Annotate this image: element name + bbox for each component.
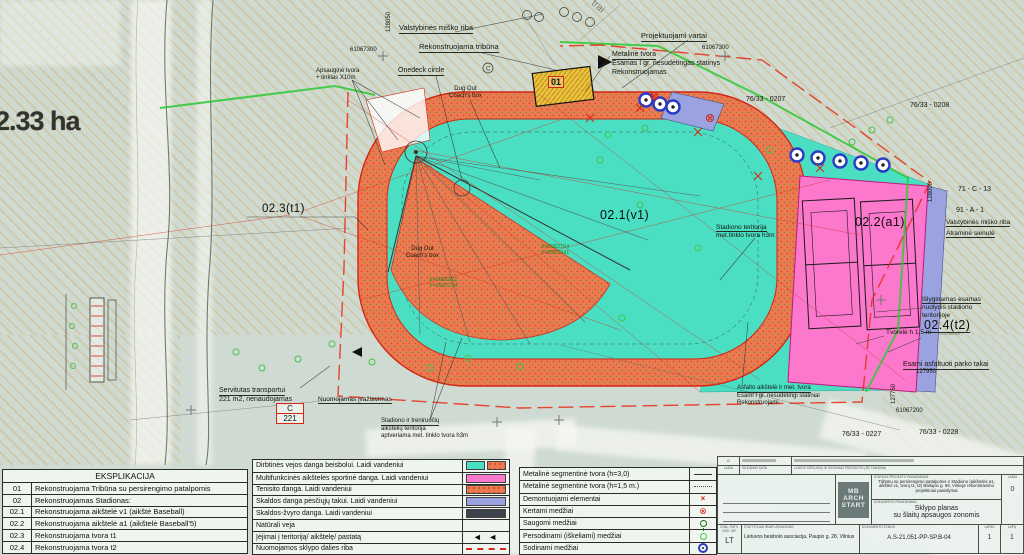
geo-point: X=6081921 Y=2587724 (429, 277, 457, 290)
violet-swatch-icon (466, 497, 506, 506)
signature-line (723, 495, 830, 504)
swatch-red-dash (462, 544, 509, 555)
leveling-label: Išlyginamas esamas nuolydis stadiono ter… (922, 296, 981, 319)
parcel-code: 76/33 - 0208 (910, 102, 949, 110)
explication-row: 02.2 Rekonstruojama aikštelė a1 (aikštel… (3, 517, 247, 529)
zone-label-field: 02.1(v1) (600, 208, 649, 222)
document-number: A.S-21.051-PP-SP.B-04 (862, 535, 976, 541)
swatch-orange (462, 485, 509, 496)
forest-boundary-label: Valstybinės miško riba (399, 24, 473, 34)
explication-text: Rekonstruojama tvora t2 (32, 542, 247, 553)
orange-swatch-icon (487, 461, 506, 470)
title-block: 0 LAIDA IŠLEIDIMO DATA LAIDOS STATUSAS I… (717, 456, 1024, 554)
legend-row: Skaldos danga pėsčiųjų takui. Laidi vand… (253, 495, 509, 507)
legend-label: Kertami medžiai (520, 506, 689, 517)
explication-table: EKSPLIKACIJA 01 Rekonstruojama Tribūna s… (2, 469, 248, 554)
swatch-dark-gray (462, 508, 509, 519)
legend-row: Įėjimai į teritoriją/ aikštelę/ pastatą … (253, 531, 509, 543)
legend-label: Demontuojami elementai (520, 494, 689, 505)
logo-cell: MB ARCH START (836, 475, 872, 524)
rented-driveway-label: Nuomojamas įvažiavimas (318, 396, 392, 404)
dugout-label-top: Dug Out Coach's box (449, 86, 482, 100)
swatch-pink (462, 473, 509, 484)
red-circle-x-icon: ⊗ (689, 506, 716, 517)
dugout-line2: Coach's box (449, 93, 482, 100)
geo-y: Y=2587241 (541, 250, 569, 256)
signature-column (718, 475, 836, 524)
explication-code: 02 (3, 495, 32, 506)
client-cell: STATYTOJAS IR/AR UŽSAKOVAS Lietuvos beis… (742, 525, 860, 553)
legend-row: Nuomojamos sklypo dalies riba (253, 543, 509, 555)
legend-label: Metalinė segmentinė tvora (h=3,0) (520, 468, 689, 480)
docnum-label: DOKUMENTO ŽYMUO (862, 526, 976, 530)
legend-row: Persodinami (iškeliami) medžiai (520, 529, 716, 541)
explication-text: Rekonstruojama aikštelė a1 (aikštelė Bas… (32, 518, 247, 529)
project-title: Tribūnų su persirengimo patalpomis ir St… (874, 480, 999, 495)
zone-label-fence-t1: 02.3(t1) (262, 203, 305, 216)
low-fence-label: Tvorelė h 1,5 m (886, 329, 931, 336)
explication-code: 01 (3, 483, 32, 494)
explication-text: Rekonstruojama Tribūna su persirengimo p… (32, 483, 247, 494)
geo-point: X=6082154 Y=2587241 (541, 244, 569, 257)
explication-row: 02.1 Rekonstruojama aikštelė v1 (aikštė … (3, 506, 247, 518)
kval-label: KVAL. PATV. DOK. NR. (720, 526, 739, 533)
legend-label: Natūrali veja (253, 520, 462, 531)
legend-label: Įėjimai į teritoriją/ aikštelę/ pastatą (253, 532, 462, 543)
legend-label: Nuomojamos sklypo dalies riba (253, 544, 462, 555)
stadium-fence-line2: met.tinklo tvora h3m (716, 232, 775, 239)
servitude-label: Servitutas transportui 221 m2, nenaudoja… (219, 387, 292, 404)
legend-row: Skaldos-žvyro danga. Laidi vandeniui (253, 507, 509, 519)
stadium-fence-line1: Stadiono teritorija (716, 224, 767, 232)
teal-swatch-icon (466, 461, 485, 470)
document-title-line1: Sklypo planas (874, 505, 999, 512)
retaining-wall-label: Atraminė sienutė (946, 230, 995, 238)
legend-row: Metalinė segmentinė tvora (h=3,0) (520, 468, 716, 480)
asphalt-line3: Rekonstruojami (737, 400, 820, 407)
legend-row: Metalinė segmentinė tvora (h=1,5 m.) (520, 480, 716, 492)
parcel-code: 76/33 - 0207 (746, 96, 785, 104)
laida-cell: LAIDA 0 (1001, 475, 1023, 524)
grid-coordinate: 128000 (928, 182, 935, 202)
asphalt-line2: Esami I gr. nesudėtingi statiniai (737, 393, 820, 400)
explication-code: 02.1 (3, 507, 32, 518)
sheet-value: 1 (981, 534, 998, 541)
date-label: IŠLEIDIMO DATA (740, 466, 792, 474)
survey-tags (483, 8, 595, 74)
metal-fence-label: Metalinė tvora (612, 51, 656, 60)
parcel-code: 76/33 - 0227 (842, 431, 881, 439)
zone-label-tribune: 01 (548, 76, 564, 88)
sheets-cell: LAPŲ 1 (1001, 525, 1023, 553)
training-fence-label: Stadiono ir treniruočių aikštelių terito… (381, 418, 468, 440)
tribune-label: Rekonstruojama tribūna (419, 43, 499, 53)
sheets-value: 1 (1003, 534, 1021, 541)
legend-row: Saugomi medžiai (520, 517, 716, 529)
grid-coordinate: 127950 (916, 369, 936, 376)
dugout-label-mid: Dug Out Coach's box (406, 246, 439, 260)
solid-line-icon (689, 468, 716, 480)
illegible-text (742, 459, 776, 462)
laida-value: 0 (1004, 486, 1021, 493)
protective-fence-line2: + tinklas X10m (316, 75, 359, 82)
explication-code: 02.3 (3, 530, 32, 541)
legend-label: Sodinami medžiai (520, 543, 689, 554)
document-title-line2: su šlaitų apsaugos zonomis (874, 512, 999, 519)
symbols-legend: Metalinė segmentinė tvora (h=3,0) Metali… (519, 467, 717, 555)
legend-row: Demontuojami elementai × (520, 493, 716, 505)
parcel-code: 71 - C - 13 (958, 186, 991, 194)
sheets-label: LAPŲ (1003, 526, 1021, 530)
training-fence-line3: aptveriama met. tinklo tvora h3m (381, 433, 468, 440)
legend-label: Saugomi medžiai (520, 518, 689, 529)
revision-value: 0 (718, 457, 740, 465)
signature-line (723, 513, 830, 522)
swatch-none (462, 520, 509, 531)
red-dash-icon (466, 548, 506, 550)
leveling-line3: teritorijoje (922, 312, 981, 319)
explication-row: 02 Rekonstruojamas Stadionas: (3, 494, 247, 506)
logo-line3: START (842, 503, 866, 510)
revision-label: LAIDA (718, 466, 740, 474)
language-code: LT (720, 536, 739, 545)
geo-y: Y=2587724 (429, 283, 457, 289)
explication-row: 02.4 Rekonstruojama tvora t2 (3, 541, 247, 553)
entrance-arrow-icon (598, 55, 612, 69)
empty-swatch (466, 521, 506, 530)
gates-label: Projektuojami vartai (641, 32, 707, 42)
revision-date-cell (740, 457, 792, 465)
ondeck-label: Onedeck circle (398, 67, 444, 76)
parcel-code: 91 - A - 1 (956, 207, 984, 215)
legend-row: Tenisito danga. Laidi vandeniui (253, 484, 509, 496)
site-plan-screenshot: C 2.33 ha Valstybinės miško riba (0, 0, 1024, 555)
swatch-violet (462, 496, 509, 507)
explication-code: 02.2 (3, 518, 32, 529)
signature-line (723, 504, 830, 513)
planted-tree-icon (689, 543, 716, 554)
training-fence-line2: aikštelių teritorija (381, 426, 468, 433)
explication-text: Rekonstruojamas Stadionas: (32, 495, 247, 506)
kval-cell: KVAL. PATV. DOK. NR. LT (718, 525, 742, 553)
legend-row: Multifunkcinės aikštelės sportinė danga.… (253, 472, 509, 484)
legend-label: Skaldos danga pėsčiųjų takui. Laidi vand… (253, 496, 462, 507)
docnum-cell: DOKUMENTO ŽYMUO A.S-21.051-PP-SP.B-04 (860, 525, 979, 553)
explication-row: 02.3 Rekonstruojama tvora t1 (3, 529, 247, 541)
swatch-entrance-arrows: ◄ ◄ (462, 532, 509, 543)
area-size-label: 2.33 ha (0, 106, 80, 137)
fence-elevation-detail (66, 294, 116, 390)
client-name: Lietuvos beisbolo asociacija, Paupio g. … (744, 534, 857, 540)
leveling-line2: nuolydis stadiono (922, 304, 981, 311)
dugout-line1: Dug Out (449, 86, 482, 93)
grid-coordinate: 61067300 (350, 47, 377, 54)
stadium-fence-label: Stadiono teritorija met.tinklo tvora h3m (716, 224, 775, 240)
pink-swatch-icon (466, 474, 506, 483)
arch-start-logo: MB ARCH START (838, 482, 869, 518)
illegible-text (794, 459, 914, 462)
sheet-label: LAPAS (981, 526, 998, 530)
grid-coordinate: 128050 (386, 12, 393, 32)
red-x-icon: × (689, 494, 716, 505)
explication-code: 02.4 (3, 542, 32, 553)
explication-text: Rekonstruojama aikštelė v1 (aikštė Baseb… (32, 507, 247, 518)
grid-coordinate: 127750 (891, 384, 898, 404)
entrance-arrows-icon: ◄ ◄ (473, 533, 499, 542)
legend-row: Natūrali veja (253, 519, 509, 531)
grid-coordinate: 61067200 (896, 408, 923, 415)
road-edge-lines (134, 0, 213, 465)
dugout-line2: Coach's box (406, 253, 439, 260)
explication-title: EKSPLIKACIJA (3, 470, 247, 482)
asphalt-label: Asfalto aikštelė ir met. tvora Esami I g… (737, 385, 820, 407)
protective-fence-line1: Apsauginė tvora (316, 68, 359, 75)
survey-station-box: C 221 (276, 403, 304, 424)
forest-boundary-right-label: Valstybinės miško riba (946, 219, 1010, 227)
existing-building-label: Esamas I gr. nesudėtingas statinys (612, 60, 720, 68)
circled-c-label: C (486, 67, 491, 73)
zone-label-courts: 02.2(a1) (855, 215, 905, 229)
legend-label: Dirbtinės vejos danga beisbolui. Laidi v… (253, 460, 462, 472)
dugout-line1: Dug Out (406, 246, 439, 253)
legend-row: Kertami medžiai ⊗ (520, 505, 716, 517)
leveling-line1: Išlyginamas esamas (922, 296, 981, 304)
parcel-code: 76/33 - 0228 (919, 429, 958, 437)
explication-row: 01 Rekonstruojama Tribūna su persirengim… (3, 482, 247, 494)
legend-row: Sodinami medžiai (520, 542, 716, 554)
entrance-arrow-icon (352, 347, 362, 357)
training-fence-line1: Stadiono ir treniruočių (381, 418, 439, 426)
laida-label: LAIDA (1004, 476, 1021, 480)
legend-label: Persodinami (iškeliami) medžiai (520, 530, 689, 541)
legend-label: Tenisito danga. Laidi vandeniui (253, 485, 462, 496)
sheet-cell: LAPAS 1 (979, 525, 1001, 553)
survey-station-number: 221 (277, 414, 303, 423)
protective-fence-label: Apsauginė tvora + tinklas X10m (316, 68, 359, 82)
swatch-teal-and-orange (462, 460, 509, 472)
legend-label: Metalinė segmentinė tvora (h=1,5 m.) (520, 481, 689, 492)
status-label: LAIDOS STATUSAS IR IŠLEIDIMO PRIEŽASTIS … (792, 466, 1023, 474)
servitude-line1: Servitutas transportui (219, 387, 285, 396)
dotted-line-icon (689, 481, 716, 492)
legend-label: Multifunkcinės aikštelės sportinė danga.… (253, 473, 462, 484)
grid-coordinate: 61067300 (702, 45, 729, 52)
survey-station-letter: C (277, 404, 303, 414)
revision-status-cell (792, 457, 1023, 465)
client-label: STATYTOJAS IR/AR UŽSAKOVAS (744, 526, 857, 530)
surfaces-legend: Dirbtinės vejos danga beisbolui. Laidi v… (252, 459, 510, 555)
legend-label: Skaldos-žvyro danga. Laidi vandeniui (253, 508, 462, 519)
legend-row: Dirbtinės vejos danga beisbolui. Laidi v… (253, 460, 509, 472)
orange-swatch-icon (466, 485, 506, 494)
explication-text: Rekonstruojama tvora t1 (32, 530, 247, 541)
protected-tree-icon (689, 518, 716, 529)
transplanted-tree-icon (689, 530, 716, 541)
gray-swatch-icon (466, 509, 506, 518)
asphalt-line1: Asfalto aikštelė ir met. tvora (737, 385, 811, 393)
reconstructed-label: Rekonstruojamas (612, 69, 666, 77)
